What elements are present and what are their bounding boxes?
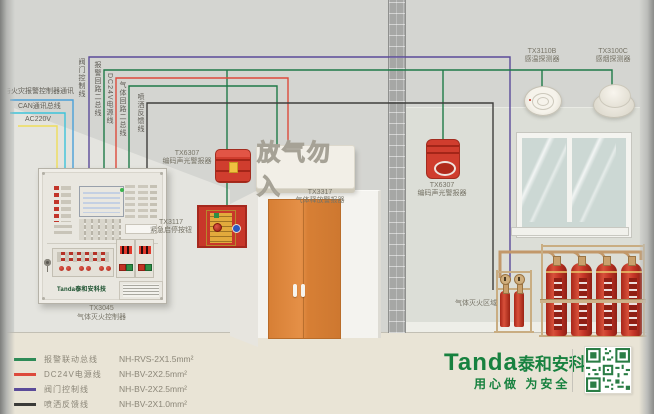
gas-extinguishing-controller: Tanda泰和安科技 (38, 168, 167, 304)
legend-spec: NH-RVS-2X1.5mm² (119, 354, 193, 364)
panel-indicator-column (138, 185, 148, 221)
panel-zone-modules (52, 248, 114, 277)
smoke-detector-name: 感烟探测器 (585, 56, 641, 65)
panel-release-module (116, 239, 135, 278)
zone-stop-button (86, 266, 91, 271)
controller-name: 气体灭火控制器 (38, 314, 165, 323)
brand-logo: Tanda泰和安科技 (444, 349, 603, 377)
door-split-line (303, 200, 304, 338)
button-blue-indicator (232, 224, 241, 233)
door-handle-right (301, 284, 305, 297)
panel-indicator-column (125, 185, 135, 221)
starter-bottle (514, 291, 524, 327)
qr-code (584, 346, 632, 394)
cylinder-band (596, 271, 617, 273)
gas-release-warning-sign: 放气勿入 (256, 145, 355, 189)
zone-start-button (99, 266, 104, 271)
smoke-detector (593, 92, 635, 118)
gas-release-alarm-name: 气体释放警报器 (284, 197, 356, 206)
sounder-left-name: 编码声光警报器 (160, 158, 214, 167)
sounder-strobe-right (426, 139, 460, 179)
panel-brand-logo: Tanda泰和安科技 (57, 284, 106, 293)
label-dc24v-wire: DC24V电源线 (104, 73, 114, 135)
button-green-indicator (214, 213, 219, 218)
emergency-button-name: 紧急启停按钮 (148, 227, 194, 236)
legend-label: 报警联动总线 (44, 354, 98, 365)
page-fold-left (0, 0, 15, 414)
sounder-right-name: 编码声光警报器 (408, 190, 476, 199)
emergency-start-stop-button (197, 205, 247, 248)
legend-spec: NH-BV-2X2.5mm² (119, 384, 187, 394)
heat-detector-name: 感温探测器 (514, 56, 570, 65)
legend-swatch-dc24v (14, 373, 36, 376)
brand-name-en: Tanda (444, 349, 518, 376)
label-gas-loop-wire: 气体回路二总线 (117, 81, 127, 143)
legend-label: 喷洒反馈线 (44, 399, 89, 410)
panel-lcd-display (79, 186, 124, 217)
module-stop-button (126, 264, 133, 271)
sounder-label-sticker (229, 162, 238, 173)
wire-ac220v (18, 126, 57, 168)
zone-stop-button (106, 266, 111, 271)
label-alarm-loop-wire: 报警回路二总线 (92, 61, 102, 123)
label-ac220v: AC220V (25, 116, 51, 124)
panel-status-leds (54, 186, 59, 222)
brand-slogan: 用心做 为安全 (474, 375, 570, 392)
panel-indicator-grid (54, 225, 72, 234)
screw (160, 172, 163, 175)
panel-key-switch (43, 259, 52, 272)
starter-bottle (500, 291, 510, 327)
countdown-display (119, 244, 133, 256)
wire-legend: 报警联动总线 NH-RVS-2X1.5mm² DC24V电源线 NH-BV-2X… (14, 354, 234, 414)
panel-release-module (135, 239, 154, 278)
detector-led (529, 99, 531, 101)
legend-swatch-spray-feedback (14, 403, 36, 406)
cylinder-band (571, 271, 592, 273)
module-start-button (119, 264, 126, 271)
sounder-strobe-left (215, 149, 251, 183)
strobe-lens (434, 161, 456, 176)
panel-power-led (120, 188, 124, 192)
screw (42, 297, 45, 300)
door-handle-left (293, 284, 297, 297)
screw (160, 297, 163, 300)
legend-spec: NH-BV-2X2.5mm² (119, 369, 187, 379)
legend-label: 阀门控制线 (44, 384, 89, 395)
module-stop-button (145, 264, 152, 271)
panel-certification-label (119, 281, 163, 300)
legend-swatch-valve-control (14, 388, 36, 391)
button-red-actuator (213, 223, 222, 232)
fire-door (268, 199, 341, 339)
zone-stop-button (66, 266, 71, 271)
cylinder-band (546, 271, 567, 273)
label-valve-control-wire: 阀门控制线 (76, 58, 86, 104)
legend-swatch-alarm-bus (14, 358, 36, 361)
page-fold-right (639, 0, 654, 414)
panel-keypad (79, 219, 121, 240)
countdown-display (138, 244, 152, 256)
panel-indicator-column (150, 185, 157, 221)
heat-detector (524, 86, 562, 116)
panel-led-labels (61, 186, 71, 222)
screw (42, 172, 45, 175)
zone-start-button (79, 266, 84, 271)
label-spray-feedback-wire: 喷洒反馈线 (135, 93, 145, 139)
module-start-button (138, 264, 145, 271)
rack-rail (540, 299, 646, 303)
zone-start-button (59, 266, 64, 271)
controller-model: TX3045 (38, 305, 165, 314)
legend-spec: NH-BV-2X1.0mm² (119, 399, 187, 409)
footer-divider (572, 349, 573, 392)
legend-label: DC24V电源线 (44, 369, 102, 380)
protection-zone-label: 气体灭火区域 (446, 300, 506, 309)
label-can-bus: CAN通讯总线 (18, 103, 61, 111)
brochure-page: 与火灾报警控制器通讯 CAN通讯总线 AC220V 阀门控制线 报警回路二总线 … (0, 0, 654, 414)
